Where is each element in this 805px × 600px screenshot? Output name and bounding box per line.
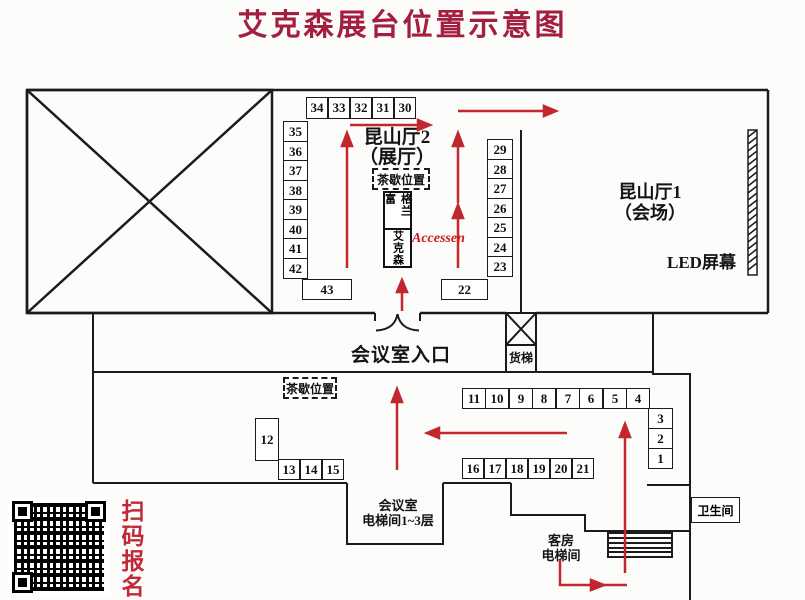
qr-finder-topright: [85, 501, 106, 522]
route-arrows: [342, 106, 630, 590]
qr-caption: 扫码报名: [114, 499, 148, 599]
floorplan-canvas: 34 33 32 31 30 35 36 37 38 39 40 41 42 2…: [0, 0, 805, 600]
qr-code: [8, 497, 110, 597]
qr-finder-topleft: [12, 501, 33, 522]
qr-finder-bottomleft: [12, 572, 33, 593]
